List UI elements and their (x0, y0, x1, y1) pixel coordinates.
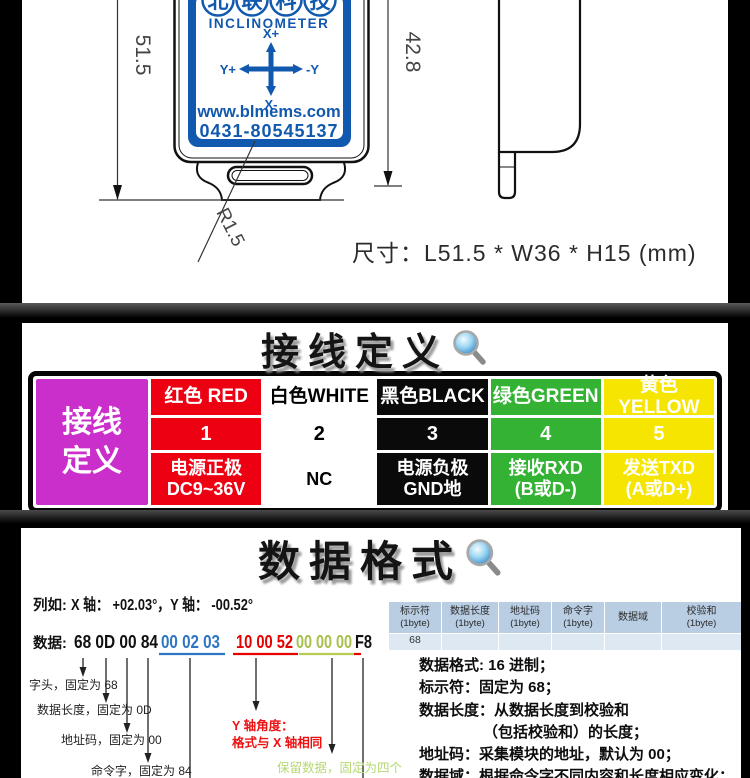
annotation-arrowheads (80, 667, 336, 763)
mounting-slot (228, 167, 312, 184)
annotation-length: 数据长度，固定为 0D (37, 702, 152, 717)
wiring-table: 接线 定义 红色 RED 白色WHITE 黑色BLACK 绿色GREEN 黄色Y… (28, 371, 722, 510)
wire-color-white: 白色WHITE (264, 379, 374, 415)
frame-row-cell (605, 634, 661, 650)
pin-number-2: 2 (264, 418, 374, 450)
frame-row-cell (442, 634, 498, 650)
frame-col-datalength: 数据长度(1byte) (442, 602, 498, 633)
example-angles: X 轴： +02.03°，Y 轴： -00.52° (71, 595, 253, 614)
note-line: 地址码：采集模块的地址，默认为 00； (419, 744, 741, 766)
dim-arrow-left (113, 185, 122, 200)
data-format-title-row: 数据格式 (21, 528, 741, 586)
svg-text:Y+: Y+ (220, 62, 237, 77)
pin-function-line1: 电源正极 (170, 458, 242, 479)
dimension-drawing: 北 联 科 技 INCLINOMETER X+ X- Y+ -Y www.blm… (22, 0, 728, 303)
drawing-panel: 北 联 科 技 INCLINOMETER X+ X- Y+ -Y www.blm… (22, 0, 728, 303)
annotation-command: 命令字，固定为 84 (91, 763, 192, 778)
frame-col-address: 地址码(1byte) (499, 602, 551, 633)
pin-function-line2: (B或D-) (515, 479, 577, 500)
pin-number-4: 4 (491, 418, 601, 450)
pin-function-line2: DC9~36V (167, 479, 246, 500)
hex-checksum-byte: F8 (355, 632, 372, 652)
hex-header-bytes: 68 0D 00 84 (74, 632, 158, 652)
wire-color-green: 绿色GREEN (491, 379, 601, 415)
note-line: 标示符：固定为 68； (419, 677, 741, 699)
data-format-notes: 数据格式: 16 进制； 标示符：固定为 68； 数据长度：从数据长度到校验和 … (419, 655, 741, 778)
wiring-header-cell: 接线 定义 (36, 379, 148, 505)
pin-function-line2: (A或D+) (626, 479, 693, 500)
svg-text:科: 科 (276, 0, 297, 13)
dim-arrow-right (384, 171, 393, 186)
hex-x-axis-bytes: 00 02 03 (161, 632, 220, 652)
size-caption: 尺寸：L51.5 * W36 * H15 (mm) (352, 240, 697, 266)
svg-text:技: 技 (310, 0, 332, 13)
frame-col-checksum: 校验和(1byte) (662, 602, 741, 633)
frame-row-cell (499, 634, 551, 650)
reserved-annotation: 保留数据，固定为四个 (277, 760, 403, 775)
label-website: www.blmems.com (196, 103, 340, 121)
pin-function-line1: NC (306, 469, 332, 490)
wire-color-black: 黑色BLACK (377, 379, 487, 415)
annotation-address: 地址码，固定为 00 (61, 732, 162, 747)
pin-function-2: NC (264, 453, 374, 505)
data-format-title: 数据格式 (258, 528, 462, 589)
radius-label: R1.5 (212, 205, 249, 250)
wiring-title: 接线定义 (261, 323, 449, 376)
pin-number-5: 5 (604, 418, 714, 450)
frame-row-cell: 68 (389, 634, 441, 650)
svg-text:联: 联 (242, 0, 263, 13)
annotation-labels: 字头，固定为 68 数据长度，固定为 0D 地址码，固定为 00 命令字，固定为… (29, 677, 192, 778)
note-line: （包括校验和）的长度； (419, 722, 741, 744)
frame-row-cell (552, 634, 604, 650)
pin-function-1: 电源正极 DC9~36V (151, 453, 261, 505)
svg-text:-Y: -Y (306, 62, 319, 77)
pin-function-5: 发送TXD (A或D+) (604, 453, 714, 505)
pin-function-3: 电源负极 GND地 (377, 453, 487, 505)
data-format-panel: 数据格式 列如: X 轴： +02.03°，Y 轴： -00.52° 数据: 6… (21, 528, 741, 778)
dim-value-left: 51.5 (131, 35, 154, 76)
pin-function-line1: 接收RXD (509, 458, 583, 479)
wire-color-yellow: 黄色YELLOW (604, 379, 714, 415)
svg-text:X+: X+ (263, 26, 280, 41)
hex-reserved-bytes: 00 00 00 (296, 632, 352, 652)
wiring-panel: 接线定义 接线 定义 红色 RED 白色WHITE 黑色BLACK 绿色GREE… (22, 323, 728, 510)
frame-col-identifier: 标示符(1byte) (389, 602, 441, 633)
example-label: 列如: (33, 596, 67, 614)
hex-y-axis-bytes: 10 00 52 (236, 632, 293, 652)
frame-col-command: 命令字(1byte) (552, 602, 604, 633)
note-line: 数据域：根据命令字不同内容和长度相应变化； (419, 766, 741, 778)
magnifier-icon[interactable] (451, 328, 489, 368)
data-label: 数据: (33, 634, 67, 652)
section-divider (0, 510, 750, 528)
wire-color-red: 红色 RED (151, 379, 261, 415)
wiring-header-line2: 定义 (62, 442, 122, 481)
svg-text:北: 北 (208, 0, 229, 13)
y-axis-annotation: Y 轴角度： 格式与 X 轴相同 (232, 718, 322, 750)
pin-function-line2: GND地 (403, 479, 461, 500)
frame-col-datafield: 数据域 (605, 602, 661, 633)
svg-text:Y 轴角度：: Y 轴角度： (232, 718, 294, 733)
side-view-outline (499, 0, 580, 198)
annotation-arrows (83, 658, 363, 778)
pin-function-line1: 发送TXD (623, 458, 695, 479)
svg-text:格式与 X 轴相同: 格式与 X 轴相同 (232, 735, 322, 750)
section-divider (0, 303, 750, 323)
dim-value-right: 42.8 (401, 32, 424, 73)
pin-number-3: 3 (377, 418, 487, 450)
pin-function-4: 接收RXD (B或D-) (491, 453, 601, 505)
note-line: 数据长度：从数据长度到校验和 (419, 700, 741, 722)
frame-row-cell (662, 634, 741, 650)
pin-function-line1: 电源负极 (396, 458, 468, 479)
pin-number-1: 1 (151, 418, 261, 450)
label-phone: 0431-80545137 (199, 121, 338, 141)
wiring-title-row: 接线定义 (22, 323, 728, 371)
frame-structure-table: 标示符(1byte) 数据长度(1byte) 地址码(1byte) 命令字(1b… (389, 602, 736, 650)
annotation-head: 字头，固定为 68 (29, 677, 118, 692)
note-line: 数据格式: 16 进制； (419, 655, 741, 677)
magnifier-icon[interactable] (464, 537, 504, 579)
wiring-header-line1: 接线 (62, 403, 122, 442)
